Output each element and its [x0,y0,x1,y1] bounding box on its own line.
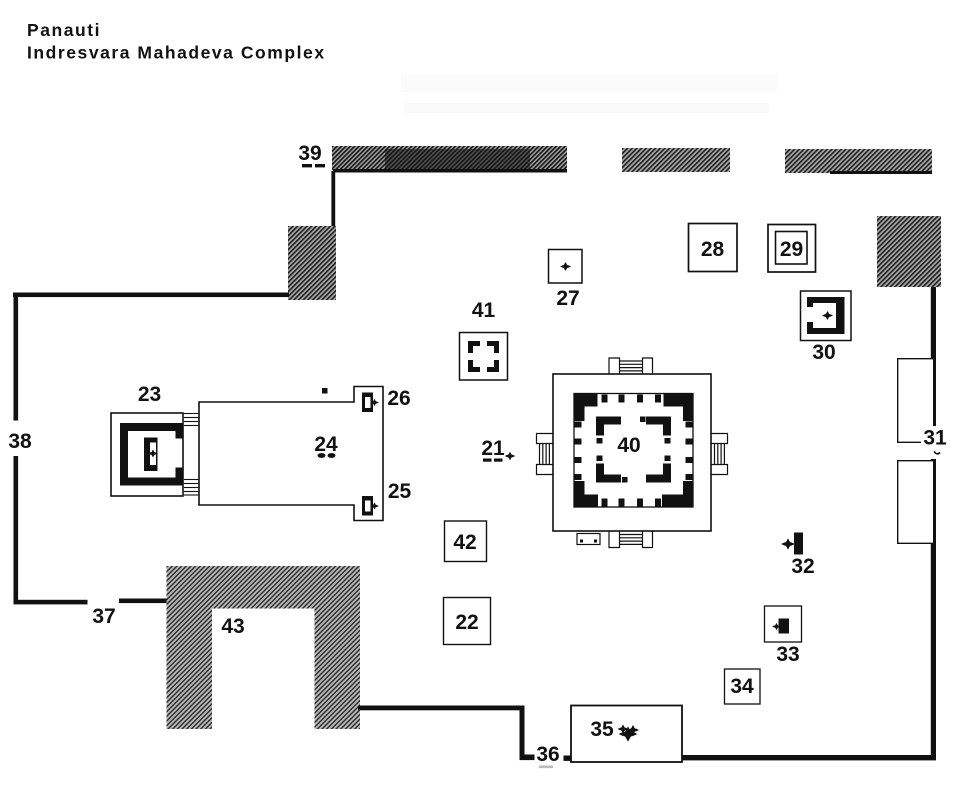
svg-text:26: 26 [387,387,410,410]
svg-text:25: 25 [388,480,412,503]
svg-text:40: 40 [617,434,640,457]
svg-text:35: 35 [590,718,614,741]
svg-text:27: 27 [556,287,579,310]
svg-text:36: 36 [536,743,559,766]
svg-text:42: 42 [453,531,476,554]
svg-text:39: 39 [298,142,321,165]
svg-text:21: 21 [481,437,505,460]
svg-text:23: 23 [138,383,161,406]
svg-text:Indresvara Mahadeva Complex: Indresvara Mahadeva Complex [27,43,326,63]
svg-text:41: 41 [472,299,496,322]
svg-text:43: 43 [221,615,244,638]
svg-text:32: 32 [791,555,814,578]
svg-text:29: 29 [780,238,803,261]
svg-text:22: 22 [455,611,478,634]
svg-text:33: 33 [776,643,799,666]
svg-text:31: 31 [923,427,947,450]
svg-text:37: 37 [92,605,115,628]
svg-text:Panauti: Panauti [27,20,101,40]
svg-text:28: 28 [701,238,725,261]
svg-text:38: 38 [8,430,32,453]
svg-text:30: 30 [812,341,835,364]
svg-text:24: 24 [314,433,338,456]
svg-text:34: 34 [730,675,754,698]
